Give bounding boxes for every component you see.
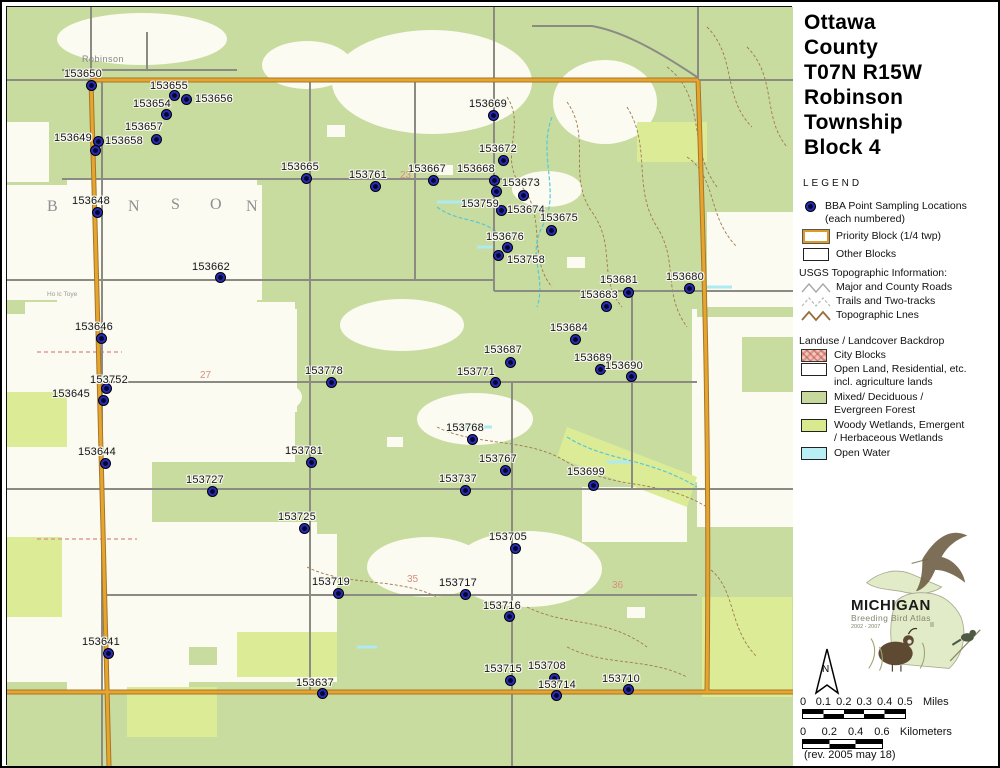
miles-tick: 0	[800, 696, 806, 708]
miles-tick: 0.5	[897, 696, 912, 708]
city-blocks-swatch	[801, 349, 827, 362]
legend-item-priority-block: Priority Block (1/4 twp)	[803, 230, 941, 243]
legend-item-open-land: Open Land, Residential, etc. incl. agric…	[801, 363, 967, 388]
legend-heading: LEGEND	[803, 178, 862, 189]
landuse-heading: Landuse / Landcover Backdrop	[799, 335, 944, 347]
title-line: Ottawa	[804, 10, 922, 35]
logo-subtitle: Breeding Bird Atlas	[851, 613, 931, 623]
wetlands-swatch	[801, 419, 827, 432]
miles-tick: 0.3	[857, 696, 872, 708]
km-tick: 0.6	[874, 726, 889, 738]
km-band	[803, 740, 882, 748]
legend-label: Major and County Roads	[836, 281, 952, 294]
miles-unit: Miles	[923, 696, 949, 708]
trail-line-icon	[801, 295, 831, 309]
logo-numeral: II	[930, 622, 934, 629]
title-line: Robinson	[804, 85, 922, 110]
legend-label: City Blocks	[834, 349, 886, 362]
legend-item-city-blocks: City Blocks	[801, 349, 886, 362]
miles-band	[803, 710, 905, 718]
other-blocks-swatch	[803, 248, 829, 261]
mbba-logo: MICHIGAN Breeding Bird Atlas 2002 - 2007…	[842, 527, 992, 677]
legend-label: Other Blocks	[836, 248, 896, 261]
priority-block-swatch	[803, 230, 829, 243]
open-water-swatch	[801, 447, 827, 460]
miles-tick: 0.4	[877, 696, 892, 708]
legend-label: Priority Block (1/4 twp)	[836, 230, 941, 243]
title-line: Township	[804, 110, 922, 135]
road-line-icon	[801, 281, 831, 295]
legend-label: Open Land, Residential, etc. incl. agric…	[834, 363, 967, 388]
km-tick: 0	[800, 726, 806, 738]
forest-swatch	[801, 391, 827, 404]
legend-label: Open Water	[834, 447, 890, 460]
legend-item-other-blocks: Other Blocks	[803, 248, 896, 261]
legend-item-forest: Mixed/ Deciduous / Evergreen Forest	[801, 391, 923, 416]
topo-map	[6, 6, 792, 765]
page: 1536501536551536561536541536571536491536…	[0, 0, 1000, 768]
legend-item-open-water: Open Water	[801, 447, 890, 460]
quail-legs	[892, 664, 901, 672]
miles-tick: 0.2	[836, 696, 851, 708]
legend-item-wetlands: Woody Wetlands, Emergent / Herbaceous We…	[801, 419, 964, 444]
title-line: Block 4	[804, 135, 922, 160]
open-land-swatch	[801, 363, 827, 376]
logo-name: MICHIGAN	[851, 597, 931, 614]
miles-band-bottom	[803, 714, 905, 718]
songbird-head	[970, 630, 976, 636]
usgs-heading: USGS Topographic Information:	[799, 267, 947, 279]
legend-item-topo-lines: Topographic Lnes	[801, 309, 919, 323]
hawk-icon	[916, 533, 967, 592]
scalebar-miles: 00.10.20.30.40.5Miles	[799, 696, 999, 724]
revision-note: (rev. 2005 may 18)	[804, 749, 896, 761]
legend-item-trails: Trails and Two-tracks	[801, 295, 935, 309]
north-label: N	[822, 664, 829, 675]
logo-years: 2002 - 2007	[851, 624, 880, 630]
quail-throat	[907, 640, 911, 644]
km-tick: 0.4	[848, 726, 863, 738]
title-line: County	[804, 35, 922, 60]
km-unit: Kilometers	[900, 726, 952, 738]
km-band-bottom	[803, 744, 882, 748]
map-title: OttawaCountyT07N R15WRobinsonTownshipBlo…	[804, 10, 922, 160]
title-line: T07N R15W	[804, 60, 922, 85]
legend-label: BBA Point Sampling Locations (each numbe…	[825, 200, 967, 225]
legend-label: Woody Wetlands, Emergent / Herbaceous We…	[834, 419, 964, 444]
km-tick: 0.2	[822, 726, 837, 738]
legend-label: Mixed/ Deciduous / Evergreen Forest	[834, 391, 923, 416]
north-arrow: N	[812, 647, 842, 699]
legend-item-roads: Major and County Roads	[801, 281, 952, 295]
bba-point-icon	[805, 201, 816, 212]
sidebar: OttawaCountyT07N R15WRobinsonTownshipBlo…	[793, 2, 1000, 766]
legend-label: Trails and Two-tracks	[836, 295, 935, 308]
map-backdrop	[7, 7, 793, 766]
legend-item-bba-points: BBA Point Sampling Locations (each numbe…	[801, 200, 967, 225]
miles-tick: 0.1	[816, 696, 831, 708]
topo-line-icon	[801, 309, 831, 323]
legend-label: Topographic Lnes	[836, 309, 919, 322]
